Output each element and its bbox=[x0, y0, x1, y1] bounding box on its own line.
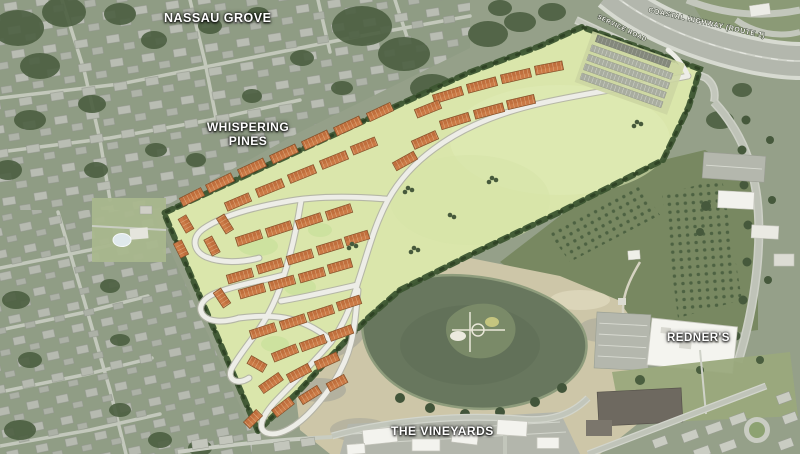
whispering-pines-label: WHISPERING PINES bbox=[192, 120, 304, 148]
community-pool-park bbox=[92, 198, 166, 262]
redners-parking bbox=[594, 312, 651, 371]
the-vineyards-label: THE VINEYARDS bbox=[391, 424, 494, 438]
whispering-pines-line2: PINES bbox=[192, 134, 304, 148]
swimming-pool bbox=[113, 234, 131, 247]
site-plan-map: COASTAL HIGHWAY (ROUTE 1) SERVICE ROAD N… bbox=[0, 0, 800, 454]
nassau-grove-label: NASSAU GROVE bbox=[164, 11, 271, 25]
whispering-pines-line1: WHISPERING bbox=[192, 120, 304, 134]
park-building bbox=[140, 206, 152, 214]
redners-label: REDNER'S bbox=[667, 332, 730, 344]
roundabout bbox=[747, 420, 768, 441]
aerial-site-plan: COASTAL HIGHWAY (ROUTE 1) SERVICE ROAD bbox=[0, 0, 800, 454]
